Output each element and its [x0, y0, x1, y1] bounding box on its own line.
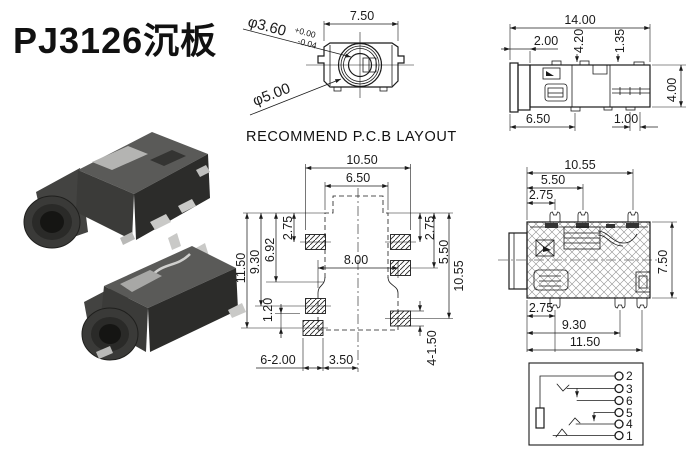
dim-section-bot-full: 11.50: [527, 335, 642, 350]
svg-text:8.00: 8.00: [344, 253, 368, 267]
svg-text:7.50: 7.50: [350, 9, 374, 23]
pin-terminal-2: [615, 372, 623, 380]
dim-side-pin-b: 1.35: [613, 29, 627, 62]
svg-text:-0.04: -0.04: [297, 36, 319, 51]
pin-terminal-1: [615, 432, 623, 440]
schematic: 2 3 6 5 4 1: [529, 363, 643, 445]
svg-text:9.30: 9.30: [562, 318, 586, 332]
svg-text:φ3.60: φ3.60: [246, 13, 288, 39]
dim-pcb-left-top: 2.75: [281, 213, 295, 242]
dim-pcb-pad-gap: 1.20: [261, 298, 281, 338]
dim-pcb-pad-height: 4-1.50: [411, 301, 440, 366]
svg-text:4.00: 4.00: [665, 78, 679, 102]
dim-section-bot-mid: 9.30: [527, 318, 620, 333]
section-view: 10.55 5.50 2.75 7.50 2.75: [498, 158, 677, 352]
svg-text:2.75: 2.75: [529, 301, 553, 315]
smd-lead: [615, 298, 625, 308]
dim-section-top-first: 2.75: [527, 188, 555, 203]
dim-section-top-full: 10.55: [527, 158, 633, 173]
svg-text:4.20: 4.20: [572, 29, 586, 53]
dim-pcb-right-top: 2.75: [420, 213, 437, 242]
svg-text:1.20: 1.20: [261, 298, 275, 322]
dim-pcb-pad-width: 6-2.00: [256, 338, 323, 371]
front-view: 7.50 φ3.60 +0.00 -0.04 φ5.00: [243, 9, 414, 115]
smd-lead: [628, 212, 638, 222]
technical-drawing: 7.50 φ3.60 +0.00 -0.04 φ5.00: [0, 0, 700, 450]
svg-text:3.50: 3.50: [329, 353, 353, 367]
svg-text:14.00: 14.00: [564, 13, 595, 27]
pin-terminal-3: [615, 385, 623, 393]
pin-terminal-6: [615, 397, 623, 405]
pin-terminal-5: [615, 409, 623, 417]
svg-text:1.35: 1.35: [613, 29, 627, 53]
page-title: PJ3126沉板: [13, 12, 217, 64]
svg-text:6.50: 6.50: [346, 171, 370, 185]
svg-text:2.00: 2.00: [534, 34, 558, 48]
side-view: 14.00 2.00 4.20 1.35: [501, 13, 686, 131]
pcb-layout-heading: RECOMMEND P.C.B LAYOUT: [246, 129, 457, 145]
dim-side-bottom-right: 1.00: [612, 112, 658, 131]
switch-contact: [557, 384, 569, 391]
pcb-footprint: 10.50 6.50 8.00 2.75: [234, 153, 466, 372]
svg-text:11.50: 11.50: [234, 253, 248, 283]
dim-side-pin-a: 4.20: [572, 29, 586, 62]
svg-text:10.55: 10.55: [452, 260, 466, 291]
dia-3-60-label: φ3.60 +0.00 -0.04: [243, 12, 351, 57]
smd-lead: [578, 212, 588, 222]
svg-text:5.50: 5.50: [541, 173, 565, 187]
dim-side-cap: 2.00: [501, 34, 558, 63]
dim-front-width: 7.50: [324, 9, 398, 41]
svg-text:4-1.50: 4-1.50: [425, 330, 439, 365]
svg-text:10.55: 10.55: [564, 158, 595, 172]
svg-text:2.75: 2.75: [281, 216, 295, 240]
smd-lead: [637, 298, 647, 308]
pin-label: 1: [626, 429, 633, 443]
dia-5-00-label: φ5.00: [250, 79, 341, 115]
svg-text:1.00: 1.00: [614, 112, 638, 126]
dim-section-top-mid: 5.50: [527, 173, 583, 188]
sleeve-contact: [536, 408, 544, 428]
svg-text:9.30: 9.30: [248, 250, 262, 274]
connector-photo-bottom: [82, 233, 246, 360]
dim-pcb-right-low: 10.55: [449, 213, 466, 319]
svg-text:φ5.00: φ5.00: [250, 80, 292, 110]
svg-text:7.50: 7.50: [656, 250, 670, 274]
datasheet-page: PJ3126沉板 RECOMMEND P.C.B LAYOUT: [0, 0, 700, 450]
pin-terminal-4: [615, 420, 623, 428]
dim-side-height: 4.00: [652, 65, 686, 107]
dim-pcb-left-mid: 9.30: [248, 213, 262, 306]
dim-pcb-center-offset: 3.50: [323, 353, 358, 368]
svg-text:10.50: 10.50: [346, 153, 377, 167]
dim-side-bottom-left: 6.50: [510, 112, 575, 131]
connector-photo-top: [24, 132, 210, 248]
svg-text:6.50: 6.50: [526, 112, 550, 126]
pin-label: 2: [626, 369, 633, 383]
svg-text:2.75: 2.75: [529, 188, 553, 202]
svg-text:2.75: 2.75: [423, 216, 437, 240]
dim-pcb-body-width: 6.50: [325, 171, 388, 210]
dim-pcb-left-step: 6.92: [263, 213, 277, 282]
dim-section-height: 7.50: [652, 222, 677, 298]
smd-lead: [550, 212, 560, 222]
svg-text:11.50: 11.50: [570, 335, 600, 349]
svg-text:6.92: 6.92: [263, 238, 277, 262]
dim-section-bot-first: 2.75: [527, 301, 555, 316]
svg-text:6-2.00: 6-2.00: [260, 353, 295, 367]
